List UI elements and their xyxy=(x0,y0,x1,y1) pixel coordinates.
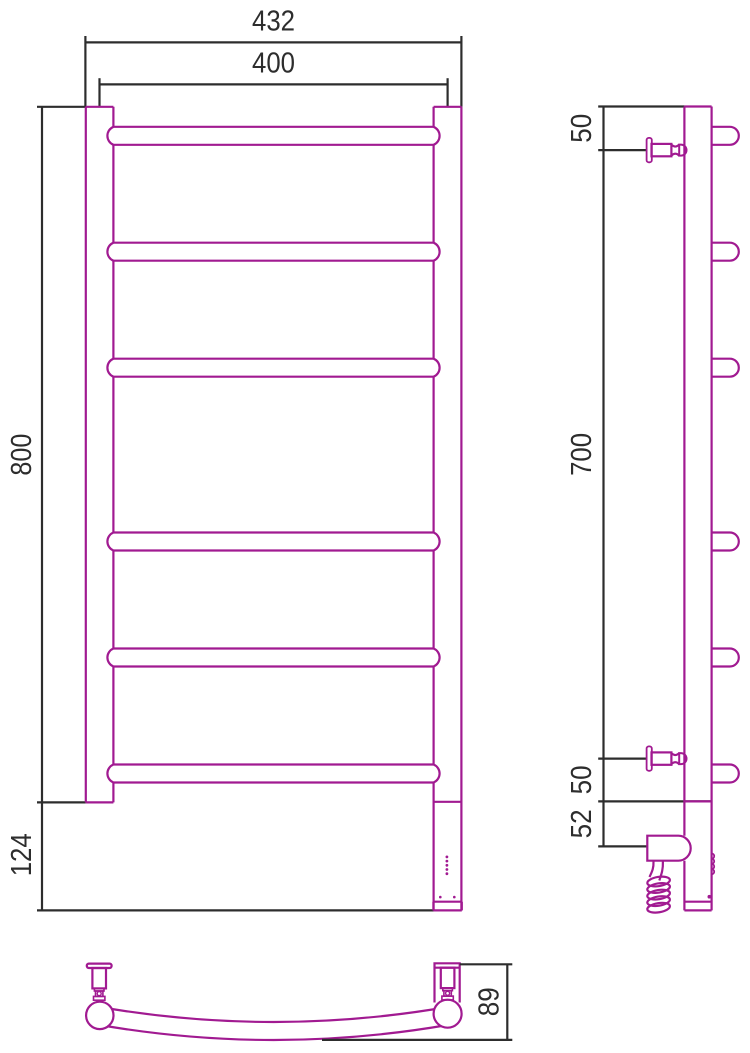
svg-text:400: 400 xyxy=(252,48,295,80)
svg-text:89: 89 xyxy=(474,987,506,1016)
svg-text:52: 52 xyxy=(566,809,598,838)
svg-text:50: 50 xyxy=(566,765,598,794)
svg-text:124: 124 xyxy=(6,833,38,876)
svg-text:800: 800 xyxy=(6,434,38,476)
svg-text:50: 50 xyxy=(566,114,598,143)
svg-text:432: 432 xyxy=(252,6,295,38)
svg-text:700: 700 xyxy=(566,433,598,476)
